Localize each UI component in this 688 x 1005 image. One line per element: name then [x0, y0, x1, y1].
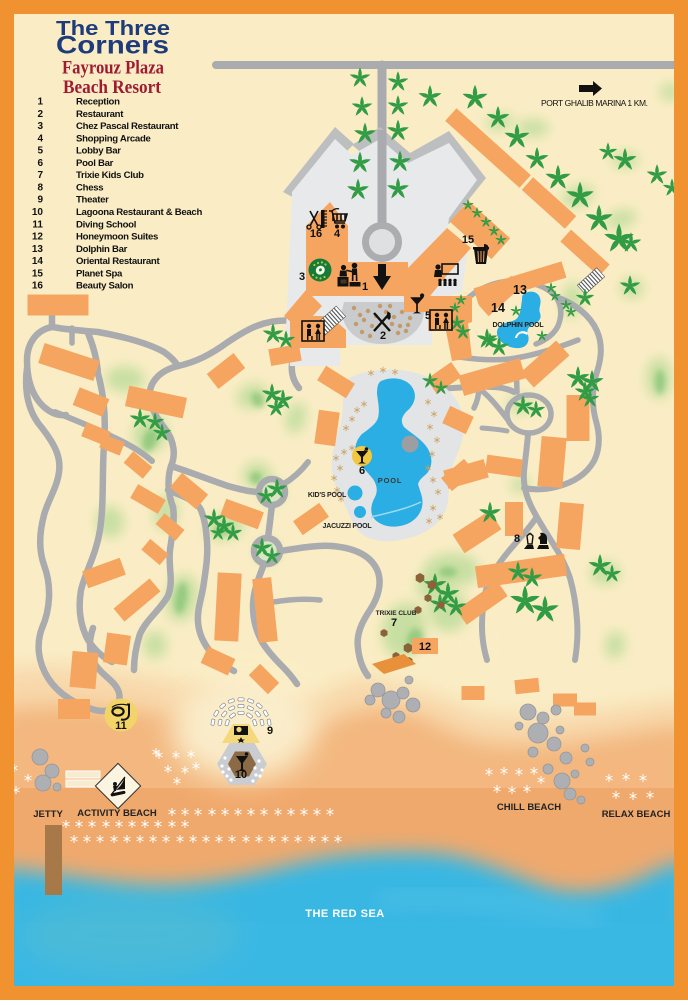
svg-text:3: 3: [299, 271, 305, 283]
svg-text:KID'S POOL: KID'S POOL: [308, 492, 347, 499]
svg-text:12: 12: [419, 641, 431, 653]
svg-text:Trixie Kids Club: Trixie Kids Club: [76, 170, 144, 181]
svg-text:13: 13: [32, 244, 44, 255]
svg-text:Chez Pascal Restaurant: Chez Pascal Restaurant: [76, 121, 179, 132]
svg-text:RELAX BEACH: RELAX BEACH: [602, 809, 671, 820]
svg-text:2: 2: [380, 330, 386, 342]
svg-text:Honeymoon Suites: Honeymoon Suites: [76, 232, 158, 243]
svg-text:Planet Spa: Planet Spa: [76, 268, 123, 279]
svg-text:7: 7: [37, 170, 43, 181]
svg-text:4: 4: [334, 228, 341, 240]
svg-text:Beauty Salon: Beauty Salon: [76, 281, 134, 292]
svg-text:CHILL BEACH: CHILL BEACH: [497, 802, 561, 813]
svg-text:14: 14: [491, 301, 505, 315]
svg-text:Lobby Bar: Lobby Bar: [76, 146, 121, 157]
svg-text:13: 13: [513, 283, 527, 297]
svg-text:8: 8: [514, 533, 520, 545]
svg-text:3: 3: [37, 121, 43, 132]
svg-text:6: 6: [37, 158, 43, 169]
svg-text:16: 16: [310, 228, 322, 240]
svg-text:8: 8: [37, 183, 43, 194]
svg-text:Chess: Chess: [76, 183, 103, 194]
svg-text:5: 5: [425, 310, 431, 322]
svg-text:4: 4: [37, 133, 43, 144]
svg-text:11: 11: [32, 219, 43, 230]
svg-text:TRIXIE CLUB: TRIXIE CLUB: [376, 610, 417, 617]
svg-text:Beach Resort: Beach Resort: [63, 77, 162, 98]
svg-text:10: 10: [235, 769, 247, 781]
svg-text:Dolphin Bar: Dolphin Bar: [76, 244, 128, 255]
svg-text:Shopping Arcade: Shopping Arcade: [76, 133, 151, 144]
svg-text:9: 9: [37, 195, 43, 206]
svg-text:Diving School: Diving School: [76, 219, 136, 230]
svg-text:1: 1: [37, 97, 43, 108]
svg-text:Corners: Corners: [56, 32, 169, 60]
svg-text:10: 10: [32, 207, 44, 218]
svg-text:Restaurant: Restaurant: [76, 109, 124, 120]
svg-text:2: 2: [37, 109, 43, 120]
svg-text:PORT GHALIB MARINA 1 KM.: PORT GHALIB MARINA 1 KM.: [541, 98, 648, 108]
svg-text:16: 16: [32, 281, 44, 292]
svg-text:THE RED SEA: THE RED SEA: [305, 908, 384, 920]
svg-text:6: 6: [359, 465, 365, 477]
svg-text:DOLPHIN POOL: DOLPHIN POOL: [493, 322, 545, 329]
svg-text:12: 12: [32, 232, 44, 243]
svg-text:POOL: POOL: [378, 476, 402, 485]
svg-text:1: 1: [362, 281, 368, 293]
svg-text:15: 15: [32, 268, 44, 279]
svg-text:Pool Bar: Pool Bar: [76, 158, 114, 169]
svg-text:9: 9: [267, 725, 273, 737]
svg-text:Lagoona Restaurant & Beach: Lagoona Restaurant & Beach: [76, 207, 202, 218]
svg-text:JACUZZI POOL: JACUZZI POOL: [323, 523, 373, 530]
svg-text:ACTIVITY BEACH: ACTIVITY BEACH: [77, 808, 157, 819]
svg-text:Reception: Reception: [76, 97, 120, 108]
svg-text:Oriental Restaurant: Oriental Restaurant: [76, 256, 160, 267]
svg-text:15: 15: [462, 234, 474, 246]
svg-text:JETTY: JETTY: [33, 809, 63, 820]
svg-text:Fayrouz Plaza: Fayrouz Plaza: [62, 58, 164, 79]
svg-text:Theater: Theater: [76, 195, 109, 206]
svg-text:7: 7: [391, 617, 397, 629]
svg-text:11: 11: [115, 720, 127, 732]
svg-text:14: 14: [32, 256, 44, 267]
svg-text:5: 5: [37, 146, 43, 157]
